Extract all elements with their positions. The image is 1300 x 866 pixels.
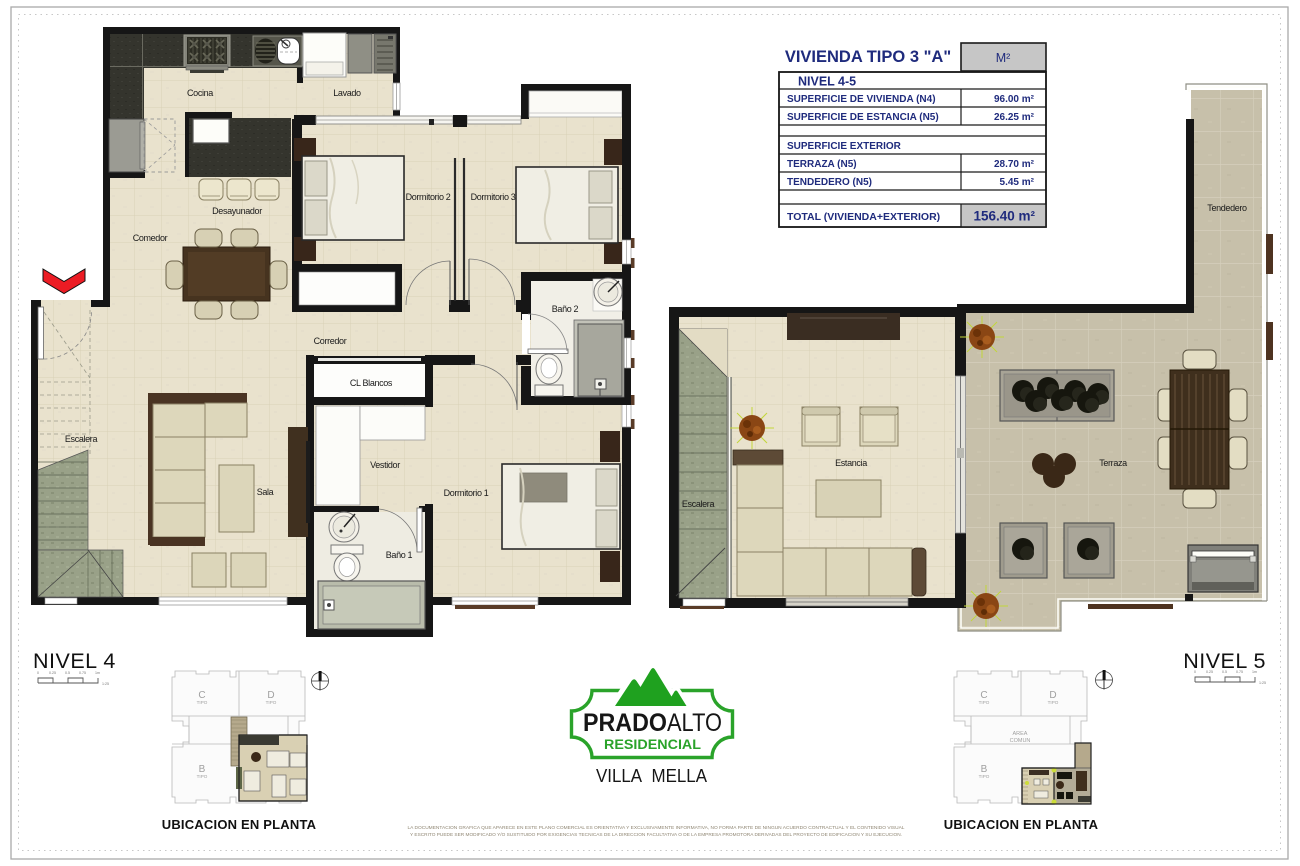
svg-text:Y ESCRITO PUEDE SER MODIFICADO: Y ESCRITO PUEDE SER MODIFICADO Y/O SUSTI… [410, 832, 902, 838]
svg-text:Lavado: Lavado [333, 88, 361, 98]
svg-text:NIVEL 4-5: NIVEL 4-5 [798, 75, 856, 89]
svg-text:M²: M² [996, 51, 1011, 65]
svg-text:0.75: 0.75 [1236, 670, 1243, 674]
svg-text:VIVIENDA TIPO 3 "A": VIVIENDA TIPO 3 "A" [785, 48, 951, 66]
svg-text:TIPO: TIPO [979, 700, 990, 705]
svg-text:TIPO: TIPO [979, 774, 990, 779]
svg-text:RESIDENCIAL: RESIDENCIAL [604, 737, 701, 752]
svg-text:Baño 1: Baño 1 [386, 550, 413, 560]
svg-text:TOTAL (VIVIENDA+EXTERIOR): TOTAL (VIVIENDA+EXTERIOR) [787, 211, 940, 223]
svg-text:26.25 m²: 26.25 m² [994, 112, 1035, 123]
svg-text:VILLA MELLA: VILLA MELLA [596, 766, 707, 786]
svg-text:1m: 1m [1252, 670, 1257, 674]
svg-text:Dormitorio 3: Dormitorio 3 [471, 192, 516, 202]
svg-text:PRADOALTO: PRADOALTO [583, 709, 722, 737]
svg-text:Comedor: Comedor [133, 233, 168, 243]
svg-text:TENDEDERO (N5): TENDEDERO (N5) [787, 177, 872, 188]
svg-text:AREA: AREA [1013, 731, 1028, 737]
svg-text:0.5: 0.5 [65, 671, 70, 675]
svg-text:156.40 m²: 156.40 m² [973, 209, 1035, 224]
svg-text:0.5: 0.5 [1222, 670, 1227, 674]
svg-text:UBICACION EN PLANTA: UBICACION EN PLANTA [944, 817, 1099, 832]
svg-text:TERRAZA (N5): TERRAZA (N5) [787, 159, 857, 170]
svg-text:Vestidor: Vestidor [370, 460, 400, 470]
svg-text:Cocina: Cocina [187, 88, 213, 98]
svg-text:0.75: 0.75 [79, 671, 86, 675]
svg-text:Escalera: Escalera [682, 499, 715, 509]
svg-text:0: 0 [1194, 670, 1196, 674]
svg-text:Dormitorio 2: Dormitorio 2 [406, 192, 451, 202]
svg-text:Terraza: Terraza [1099, 458, 1127, 468]
svg-text:Escalera: Escalera [65, 434, 98, 444]
svg-text:SUPERFICIE EXTERIOR: SUPERFICIE EXTERIOR [787, 141, 902, 152]
svg-text:1m: 1m [95, 671, 100, 675]
svg-text:Estancia: Estancia [835, 458, 867, 468]
svg-text:Baño 2: Baño 2 [552, 304, 579, 314]
svg-text:Tendedero: Tendedero [1207, 203, 1247, 213]
svg-text:SUPERFICIE DE ESTANCIA (N5): SUPERFICIE DE ESTANCIA (N5) [787, 112, 939, 123]
svg-text:TIPO: TIPO [266, 700, 277, 705]
svg-text:0: 0 [37, 671, 39, 675]
svg-text:Corredor: Corredor [314, 336, 347, 346]
svg-text:Desayunador: Desayunador [212, 206, 262, 216]
svg-text:COMUN: COMUN [1010, 738, 1031, 744]
svg-text:NIVEL 4: NIVEL 4 [33, 649, 116, 673]
svg-text:1:25: 1:25 [1259, 681, 1266, 685]
svg-text:0.25: 0.25 [1206, 670, 1213, 674]
svg-text:LA DOCUMENTACION GRAFICA QUE A: LA DOCUMENTACION GRAFICA QUE APARECE EN … [408, 825, 905, 831]
svg-text:UBICACION EN PLANTA: UBICACION EN PLANTA [162, 817, 317, 832]
svg-text:SUPERFICIE DE VIVIENDA (N4): SUPERFICIE DE VIVIENDA (N4) [787, 94, 936, 105]
svg-text:28.70 m²: 28.70 m² [994, 159, 1035, 170]
svg-text:96.00 m²: 96.00 m² [994, 94, 1035, 105]
svg-text:Sala: Sala [257, 487, 274, 497]
svg-text:CL Blancos: CL Blancos [350, 378, 393, 388]
svg-text:5.45 m²: 5.45 m² [1000, 177, 1035, 188]
svg-text:1:25: 1:25 [102, 682, 109, 686]
svg-text:0.25: 0.25 [49, 671, 56, 675]
svg-text:Dormitorio 1: Dormitorio 1 [444, 488, 489, 498]
svg-text:TIPO: TIPO [197, 774, 208, 779]
svg-text:TIPO: TIPO [1048, 700, 1059, 705]
svg-text:TIPO: TIPO [197, 700, 208, 705]
